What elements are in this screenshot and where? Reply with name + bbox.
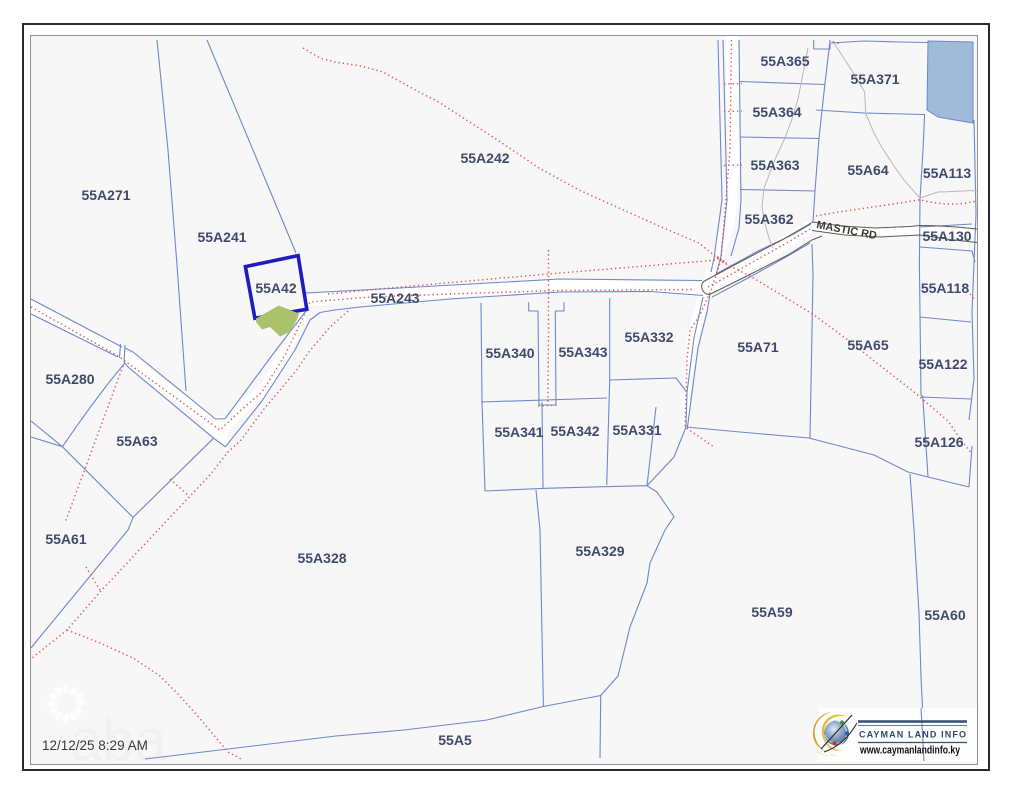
- svg-text:55A362: 55A362: [744, 211, 793, 227]
- svg-text:55A331: 55A331: [612, 422, 661, 438]
- svg-text:55A271: 55A271: [81, 187, 130, 203]
- svg-text:55A5: 55A5: [438, 732, 472, 748]
- svg-text:55A365: 55A365: [760, 53, 809, 69]
- svg-text:55A242: 55A242: [460, 150, 509, 166]
- svg-text:55A118: 55A118: [921, 280, 969, 296]
- svg-text:55A341: 55A341: [494, 424, 543, 440]
- svg-text:55A122: 55A122: [918, 356, 967, 372]
- svg-text:55A343: 55A343: [558, 344, 607, 360]
- svg-text:55A371: 55A371: [850, 71, 899, 87]
- svg-text:55A59: 55A59: [751, 604, 792, 620]
- svg-text:55A340: 55A340: [485, 345, 534, 361]
- svg-text:12/12/25 8:29 AM: 12/12/25 8:29 AM: [42, 738, 148, 753]
- svg-text:55A332: 55A332: [624, 329, 673, 345]
- svg-text:55A241: 55A241: [197, 229, 246, 245]
- svg-text:www.caymanlandinfo.ky: www.caymanlandinfo.ky: [859, 745, 960, 757]
- svg-text:55A71: 55A71: [737, 339, 778, 355]
- svg-text:55A61: 55A61: [45, 531, 86, 547]
- svg-text:55A329: 55A329: [575, 543, 624, 559]
- svg-text:55A130: 55A130: [922, 228, 971, 244]
- svg-text:55A280: 55A280: [45, 371, 94, 387]
- svg-text:CAYMAN LAND INFO: CAYMAN LAND INFO: [859, 730, 966, 740]
- svg-text:55A65: 55A65: [847, 337, 888, 353]
- svg-text:55A64: 55A64: [847, 162, 888, 178]
- svg-text:55A60: 55A60: [924, 607, 965, 623]
- svg-text:55A342: 55A342: [550, 423, 599, 439]
- svg-text:55A63: 55A63: [116, 433, 157, 449]
- svg-text:55A126: 55A126: [914, 434, 963, 450]
- svg-text:55A243: 55A243: [370, 290, 419, 306]
- svg-text:55A363: 55A363: [750, 157, 799, 173]
- svg-text:55A42: 55A42: [255, 280, 296, 296]
- svg-text:55A113: 55A113: [923, 165, 971, 181]
- svg-text:55A364: 55A364: [752, 104, 801, 120]
- svg-text:55A328: 55A328: [297, 550, 346, 566]
